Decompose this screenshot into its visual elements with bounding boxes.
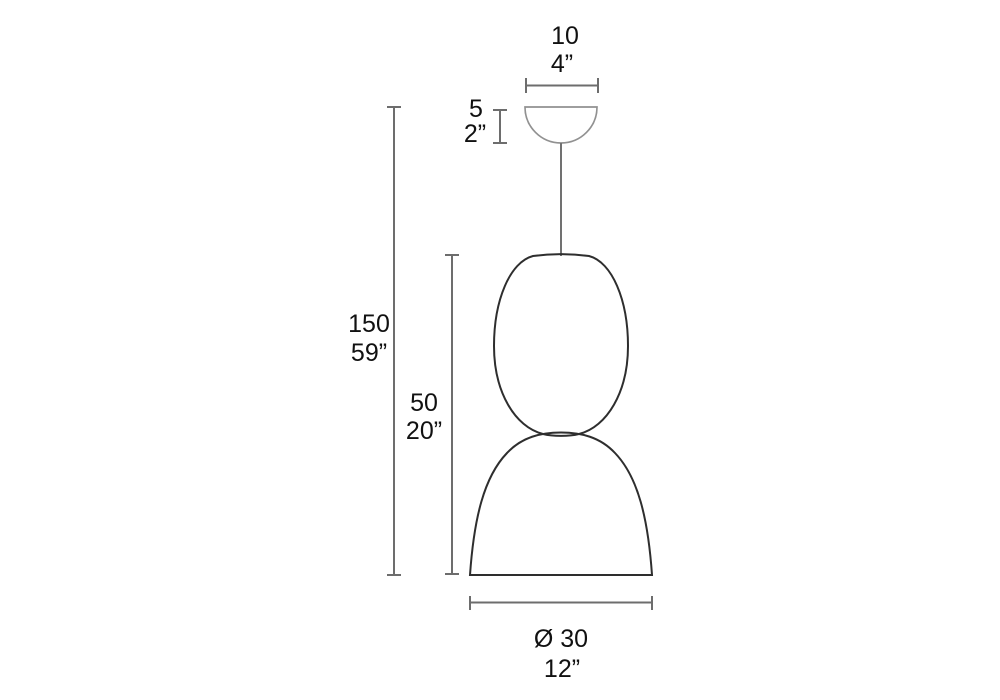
diameter-imperial-label: 12” [544,655,580,683]
ceiling-canopy-shape [525,107,597,143]
lamp-dimension-diagram: 10 4” 5 2” 150 59” 50 20” [0,0,1000,700]
diameter-metric-label: Ø 30 [534,625,588,653]
diameter-dimension: Ø 30 12” [470,596,652,683]
canopy-height-dimension: 5 2” [464,95,507,148]
canopy-width-dimension: 10 4” [526,22,598,93]
canopy-width-metric-label: 10 [551,22,579,50]
shade-height-imperial-label: 20” [406,417,442,445]
upper-shade-shape [494,254,628,436]
total-height-dimension: 150 59” [348,107,401,575]
canopy-height-imperial-label: 2” [464,120,486,148]
canopy-height-metric-label: 5 [469,95,483,123]
shade-height-dimension: 50 20” [406,255,459,574]
canopy-width-imperial-label: 4” [551,50,573,78]
lamp-drawing [470,107,652,575]
total-height-metric-label: 150 [348,310,390,338]
lower-shade-shape [470,433,652,576]
diagram-canvas: 10 4” 5 2” 150 59” 50 20” [0,0,1000,700]
shade-height-metric-label: 50 [410,389,438,417]
total-height-imperial-label: 59” [351,339,387,367]
